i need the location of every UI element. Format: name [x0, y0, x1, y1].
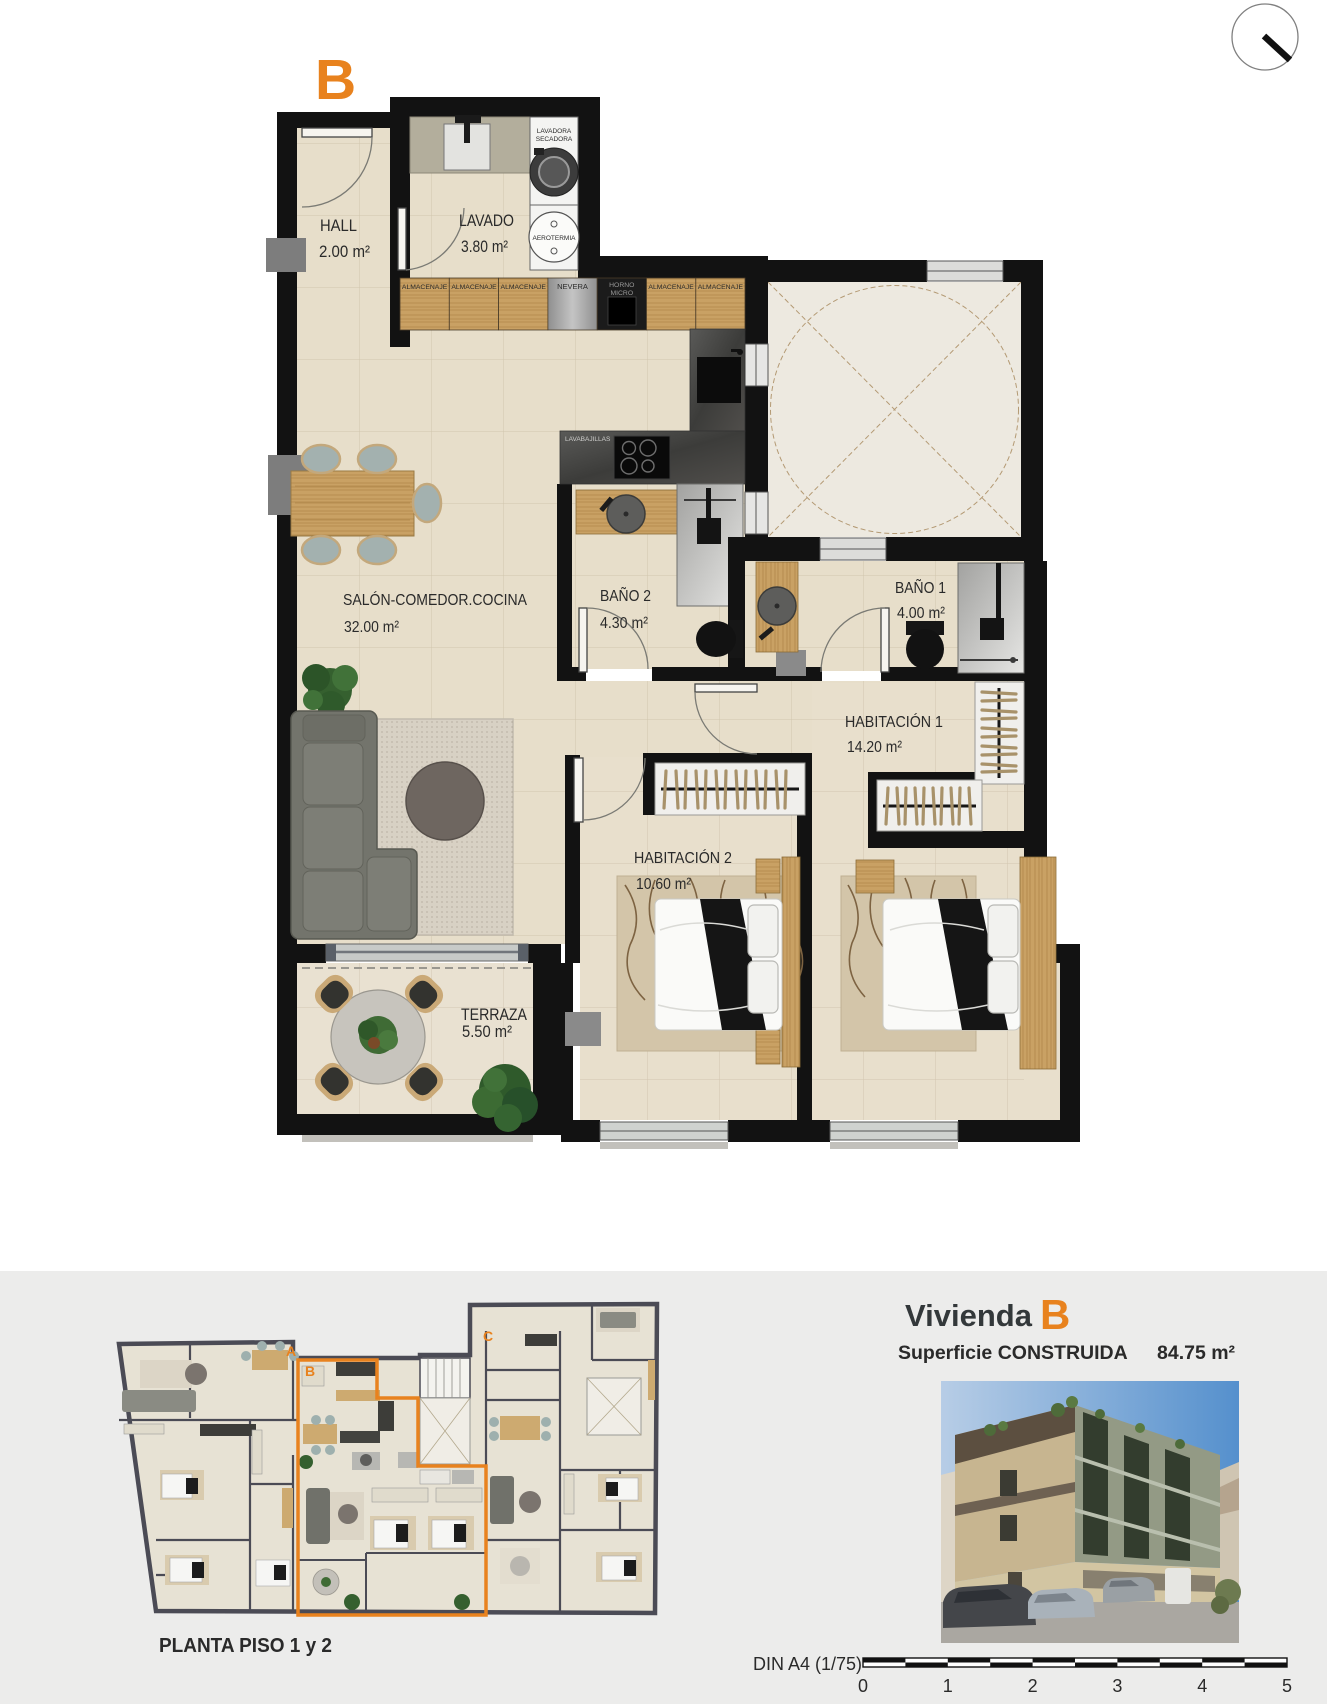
- svg-text:C: C: [483, 1328, 493, 1344]
- svg-text:ALMACENAJE: ALMACENAJE: [698, 284, 744, 291]
- svg-text:10.60 m²: 10.60 m²: [636, 876, 692, 893]
- svg-text:0: 0: [858, 1676, 868, 1696]
- svg-text:5.50 m²: 5.50 m²: [462, 1023, 512, 1041]
- svg-text:DIN A4 (1/75): DIN A4 (1/75): [753, 1654, 862, 1674]
- svg-text:LAVABAJILLAS: LAVABAJILLAS: [565, 436, 611, 443]
- svg-text:B: B: [1040, 1291, 1070, 1338]
- svg-text:MICRO: MICRO: [610, 290, 633, 297]
- svg-text:4: 4: [1197, 1676, 1207, 1696]
- svg-text:NEVERA: NEVERA: [557, 282, 588, 291]
- svg-text:LAVADO: LAVADO: [459, 212, 514, 230]
- svg-text:5: 5: [1282, 1676, 1292, 1696]
- svg-text:32.00 m²: 32.00 m²: [344, 619, 400, 636]
- svg-text:A: A: [286, 1343, 296, 1359]
- svg-text:Vivienda: Vivienda: [905, 1298, 1033, 1333]
- svg-text:Superficie CONSTRUIDA: Superficie CONSTRUIDA: [898, 1342, 1128, 1364]
- svg-text:4.30 m²: 4.30 m²: [600, 615, 649, 632]
- svg-text:B: B: [305, 1363, 315, 1379]
- svg-text:B: B: [315, 48, 356, 112]
- svg-text:PLANTA PISO 1 y 2: PLANTA PISO 1 y 2: [159, 1634, 332, 1657]
- svg-text:1: 1: [943, 1676, 953, 1696]
- svg-text:SALÓN-COMEDOR.COCINA: SALÓN-COMEDOR.COCINA: [343, 590, 527, 609]
- svg-text:3.80 m²: 3.80 m²: [461, 238, 508, 256]
- svg-text:BAÑO 1: BAÑO 1: [895, 577, 946, 597]
- svg-text:HABITACIÓN 1: HABITACIÓN 1: [845, 712, 943, 731]
- svg-text:LAVADORA: LAVADORA: [537, 128, 572, 135]
- svg-text:SECADORA: SECADORA: [536, 136, 573, 143]
- svg-text:2.00 m²: 2.00 m²: [319, 243, 370, 261]
- svg-text:ALMACENAJE: ALMACENAJE: [402, 284, 448, 291]
- svg-text:84.75 m²: 84.75 m²: [1157, 1342, 1236, 1364]
- svg-text:HORNO: HORNO: [609, 282, 634, 289]
- svg-text:ALMACENAJE: ALMACENAJE: [501, 284, 547, 291]
- svg-text:2: 2: [1028, 1676, 1038, 1696]
- svg-text:3: 3: [1112, 1676, 1122, 1696]
- svg-text:AEROTERMIA: AEROTERMIA: [533, 235, 577, 242]
- svg-text:ALMACENAJE: ALMACENAJE: [451, 284, 497, 291]
- svg-text:ALMACENAJE: ALMACENAJE: [648, 284, 694, 291]
- svg-text:4.00 m²: 4.00 m²: [897, 605, 946, 622]
- svg-text:14.20 m²: 14.20 m²: [847, 739, 903, 756]
- svg-text:HABITACIÓN 2: HABITACIÓN 2: [634, 848, 732, 867]
- svg-text:TERRAZA: TERRAZA: [461, 1006, 527, 1024]
- svg-text:HALL: HALL: [320, 217, 357, 235]
- svg-text:BAÑO 2: BAÑO 2: [600, 585, 651, 605]
